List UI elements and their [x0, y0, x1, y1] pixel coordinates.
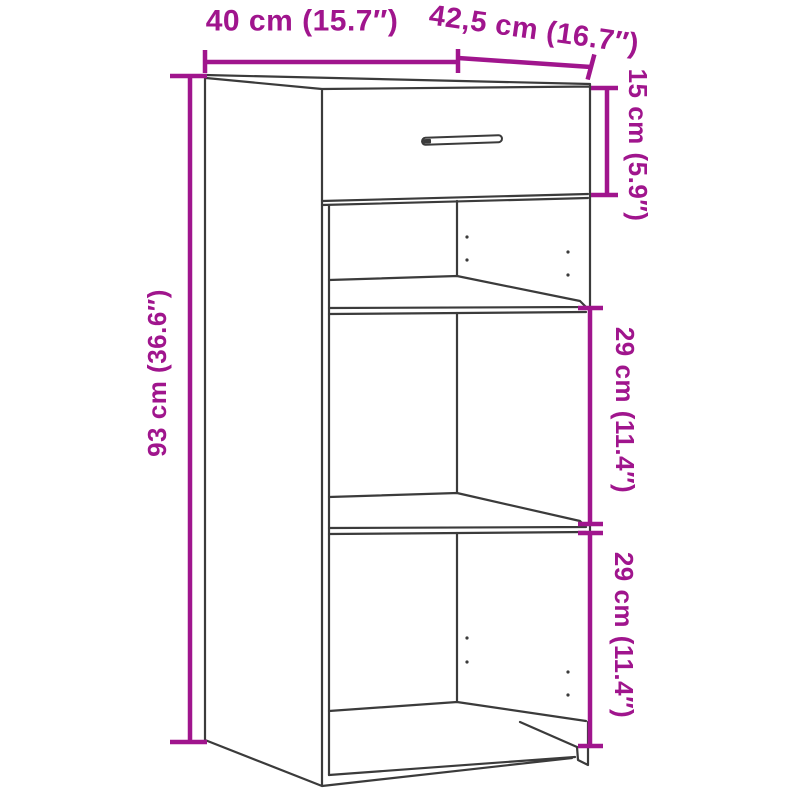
shelf-upper: [329, 276, 586, 314]
plinth-notch: [577, 722, 588, 765]
cabinet-dimension-diagram: 40 cm (15.7″) 42,5 cm (16.7″) 15 cm (5.9…: [0, 0, 800, 800]
drawer-handle-bar: [422, 135, 502, 145]
shelf-pin-holes: [465, 235, 569, 696]
pin-hole: [566, 250, 569, 253]
dimension-line-total-height: [170, 76, 207, 742]
pin-hole: [566, 693, 569, 696]
dimension-annotations: 40 cm (15.7″) 42,5 cm (16.7″) 15 cm (5.9…: [142, 0, 653, 746]
dimension-depth: [458, 54, 594, 79]
cabinet-drawing: [205, 75, 590, 786]
dimension-line-width: [205, 49, 458, 73]
dimension-lower-compartment: [578, 533, 603, 746]
dimension-upper-compartment: [578, 308, 603, 524]
label-lower-compartment: 29 cm (11.4″): [609, 552, 639, 718]
pin-hole: [566, 273, 569, 276]
shelf-lower: [329, 493, 586, 534]
label-drawer-height: 15 cm (5.9″): [623, 69, 653, 222]
diagram-canvas: 40 cm (15.7″) 42,5 cm (16.7″) 15 cm (5.9…: [0, 0, 800, 800]
drawer-handle: [422, 135, 502, 145]
cabinet-outline: [205, 75, 590, 786]
pin-hole: [566, 670, 569, 673]
dimension-total-height: [170, 76, 207, 742]
dimension-width: [205, 49, 458, 73]
dimension-drawer-height: [591, 88, 618, 195]
drawer-front: [322, 194, 588, 205]
pin-hole: [465, 258, 468, 261]
dimension-line-drawer: [591, 88, 618, 195]
label-upper-compartment: 29 cm (11.4″): [610, 327, 640, 493]
dimension-line-depth: [458, 58, 591, 67]
dimension-labels: 40 cm (15.7″) 42,5 cm (16.7″) 15 cm (5.9…: [142, 0, 653, 718]
dimension-line-upper: [578, 308, 603, 524]
label-width: 40 cm (15.7″): [206, 5, 399, 38]
cabinet-floor: [329, 702, 586, 747]
drawer-handle-cap: [423, 139, 431, 144]
pin-hole: [465, 636, 468, 639]
pin-hole: [465, 235, 468, 238]
pin-hole: [465, 660, 468, 663]
dimension-line-lower: [578, 533, 603, 746]
label-total-height: 93 cm (36.6″): [142, 289, 172, 457]
